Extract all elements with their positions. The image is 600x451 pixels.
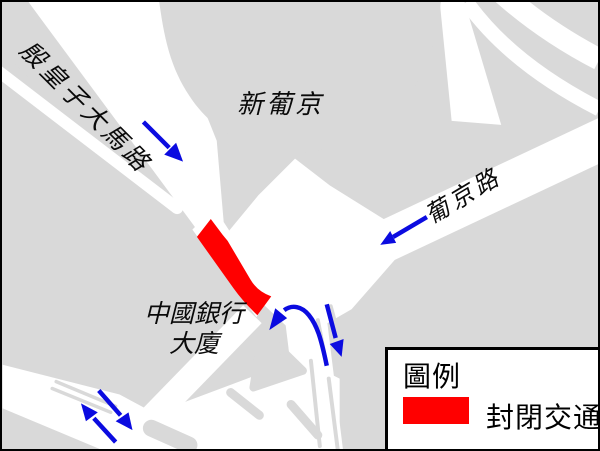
closed-traffic-swatch (403, 397, 469, 424)
building-label-grand-lisboa: 新葡京 (237, 84, 324, 121)
legend-title: 圖例 (403, 355, 461, 395)
building-label-bank-of-china: 中國銀行 大廈 (138, 300, 250, 360)
bank-label-line2: 大廈 (169, 331, 219, 358)
closed-traffic-label: 封閉交通 (486, 396, 600, 436)
map-canvas: 殷皇子大馬路 新葡京 葡京路 中國銀行 大廈 圖例 封閉交通 (0, 0, 600, 451)
legend-box: 圖例 封閉交通 (385, 347, 600, 451)
bank-label-line1: 中國銀行 (144, 301, 244, 328)
